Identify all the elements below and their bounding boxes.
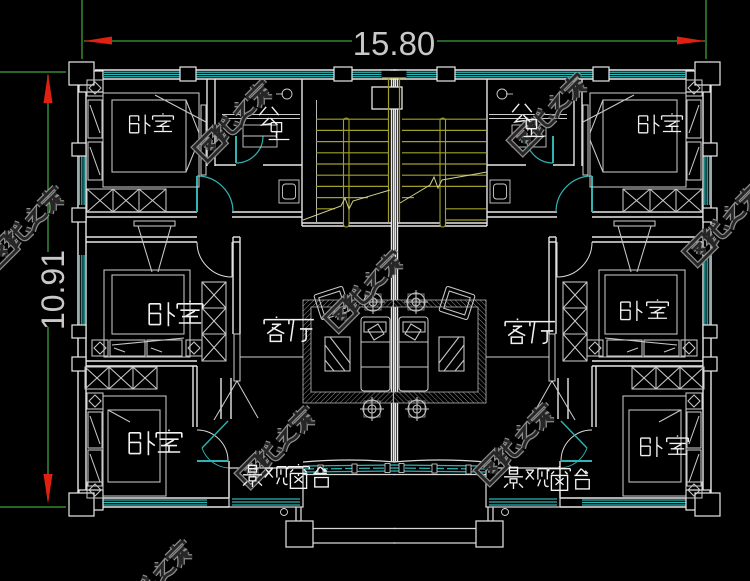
svg-text:15.80: 15.80: [353, 25, 436, 62]
svg-text:10.91: 10.91: [35, 250, 71, 330]
